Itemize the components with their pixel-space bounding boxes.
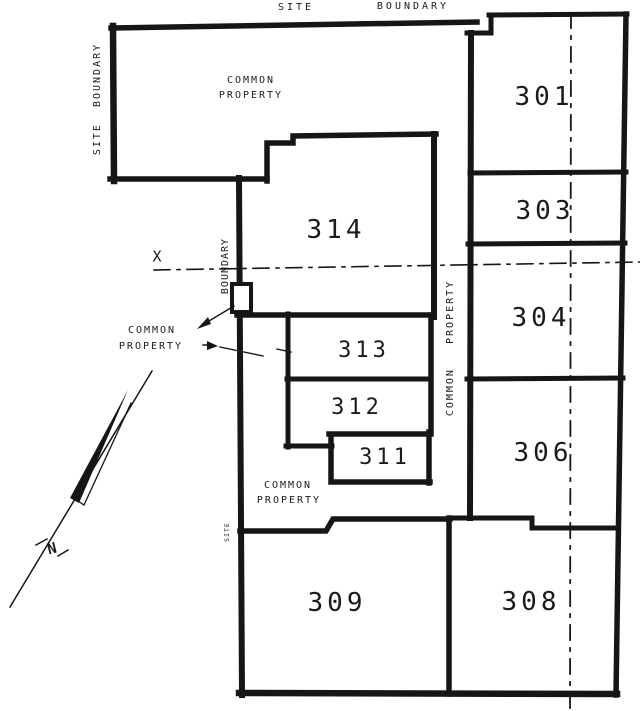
lot-314-notch-and-top [267,134,436,181]
north-arrow-tick-right [58,550,68,556]
lot-304-306-divider [467,378,623,379]
north-arrow-filled-blade [70,390,128,503]
lot-label-308: 308 [502,589,561,615]
lot-309-top-edge [240,519,450,531]
site-boundary-left-label: SITE BOUNDARY [93,43,103,155]
lot-label-306: 306 [514,440,573,466]
common-property-top-line1: COMMON [227,76,275,86]
common-property-top-line2: PROPERTY [219,91,283,101]
strata-site-plan: SITE BOUNDARY SITE BOUNDARY COMMON PROPE… [0,0,640,711]
interior-west-boundary [239,178,242,695]
site-boundary-bottom-line [239,693,617,694]
common-property-small-box [232,284,251,312]
common-property-left-line2: PROPERTY [119,342,183,352]
lot-301-top-edge [489,14,627,15]
lot-label-313: 313 [338,340,390,362]
corridor-east-boundary [470,33,471,518]
lot-label-303: 303 [516,198,575,224]
site-boundary-right-line [616,14,626,695]
lot-label-301: 301 [515,84,574,110]
site-small-vertical-label: SITE [224,522,231,542]
common-property-bottom-line1: COMMON [264,481,312,491]
site-boundary-top-line [111,22,477,28]
common-property-left-line1: COMMON [128,326,176,336]
x-section-marker: X [152,250,161,265]
lot-label-304: 304 [512,305,571,331]
boundary-vertical-label: BOUNDARY [221,238,231,294]
leader-arrowhead-lower [207,341,218,350]
site-boundary-top-label-site: SITE [278,3,314,13]
lot-label-312: 312 [331,397,383,419]
common-property-bottom-line2: PROPERTY [257,496,321,506]
site-boundary-left-line [113,26,114,181]
lot-303-304-divider [468,243,625,244]
lot-301-303-divider [470,172,626,173]
lot-label-309: 309 [308,590,367,616]
lot-308-top-edge [449,518,617,528]
lot-label-311: 311 [359,447,411,469]
vertical-dashed-line [570,13,571,710]
common-property-corridor-label: COMMON PROPERTY [446,280,456,416]
leader-arrowhead-upper [197,317,211,329]
site-boundary-top-label-boundary: BOUNDARY [377,2,449,12]
lot-label-314: 314 [307,217,366,243]
